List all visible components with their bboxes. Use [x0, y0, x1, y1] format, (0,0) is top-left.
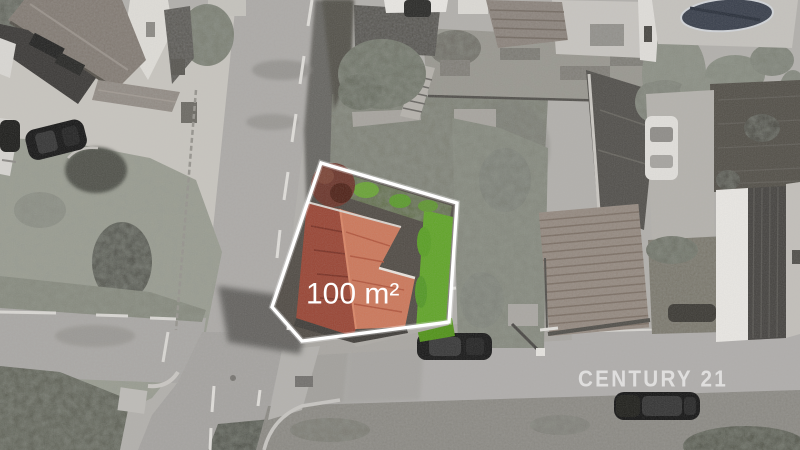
svg-text:CENTURY 21: CENTURY 21	[578, 365, 728, 392]
svg-text:100 m²: 100 m²	[306, 278, 399, 311]
